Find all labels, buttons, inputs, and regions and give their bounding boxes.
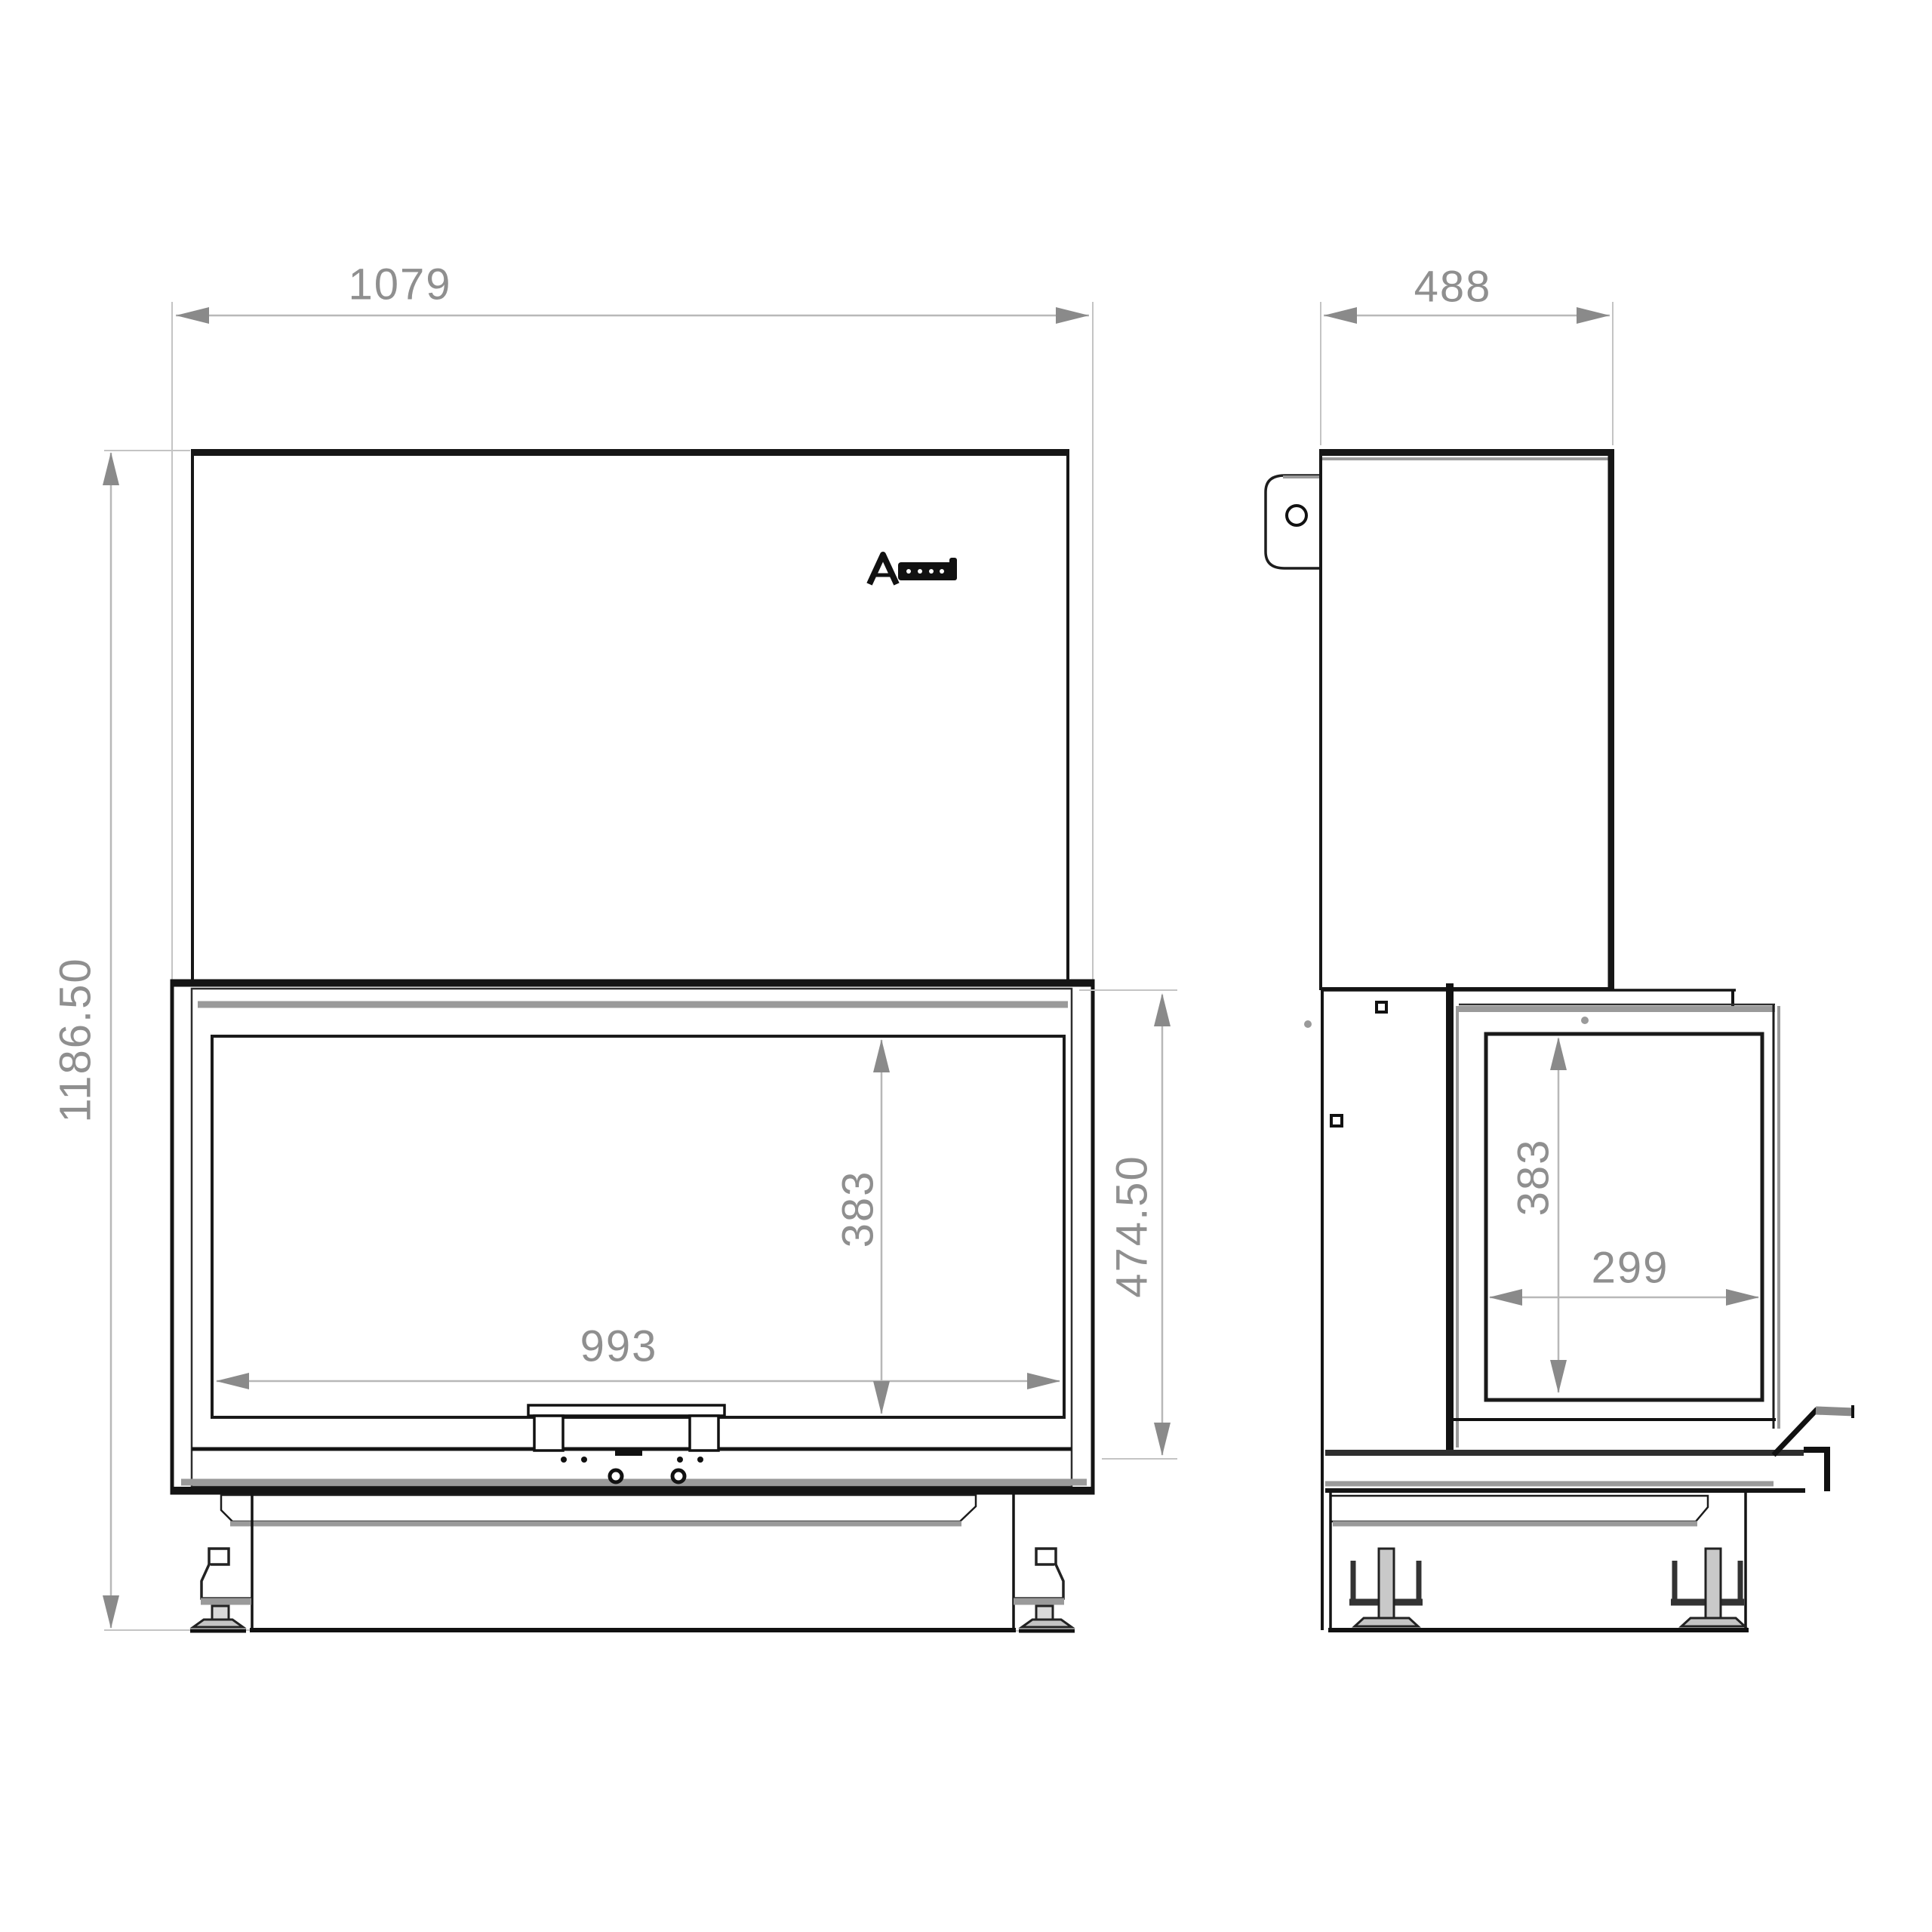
side-hood-panel [1319, 451, 1614, 989]
pin-dot-icon [1581, 1017, 1589, 1024]
dimension-label: 1186.50 [51, 957, 100, 1122]
arrow-left-icon [1324, 307, 1357, 324]
side-depth-dimension: 488 [1321, 263, 1613, 446]
drawing-canvas: 1079 1186.50 [0, 0, 1932, 1932]
ash-tray [221, 1495, 976, 1521]
front-view: 1079 1186.50 [51, 260, 1178, 1632]
side-view: 488 [1266, 263, 1854, 1631]
dimension-label: 474.50 [1108, 1155, 1157, 1297]
screw-hole-icon [1331, 1115, 1342, 1126]
arrow-right-icon [1577, 307, 1610, 324]
dimension-label: 299 [1592, 1244, 1669, 1293]
dimension-label: 1079 [348, 260, 451, 309]
leveling-foot-side-left [1349, 1549, 1423, 1630]
front-base [221, 1493, 1075, 1631]
bolt-hole-icon [1287, 506, 1306, 525]
side-body [1304, 983, 1854, 1630]
side-glass-opening [1486, 1034, 1762, 1400]
screw-hole-icon [672, 1470, 685, 1482]
pin-dot-icon [1304, 1020, 1312, 1028]
leveling-foot-front-left [190, 1549, 251, 1631]
arrow-down-icon [1154, 1423, 1171, 1456]
arrow-down-icon [103, 1595, 119, 1629]
arrow-up-icon [103, 452, 119, 485]
leveling-foot-front-right [1014, 1549, 1075, 1631]
arrow-up-icon [1154, 993, 1171, 1026]
dimension-label: 383 [834, 1171, 883, 1248]
arrow-right-icon [1056, 307, 1089, 324]
dimension-label: 488 [1414, 263, 1492, 312]
rear-mounting-bracket [1266, 475, 1323, 568]
screw-hole-icon [1377, 1002, 1386, 1012]
ash-tray [1331, 1496, 1708, 1521]
arrow-left-icon [176, 307, 209, 324]
technical-drawing: 1079 1186.50 [0, 0, 1932, 1932]
dimension-label: 383 [1509, 1139, 1558, 1217]
leveling-foot-side-right [1671, 1549, 1748, 1630]
dimension-label: 993 [580, 1322, 658, 1371]
screw-hole-icon [610, 1470, 622, 1482]
front-firebox [171, 981, 1094, 1493]
front-hood-panel [191, 451, 1069, 983]
